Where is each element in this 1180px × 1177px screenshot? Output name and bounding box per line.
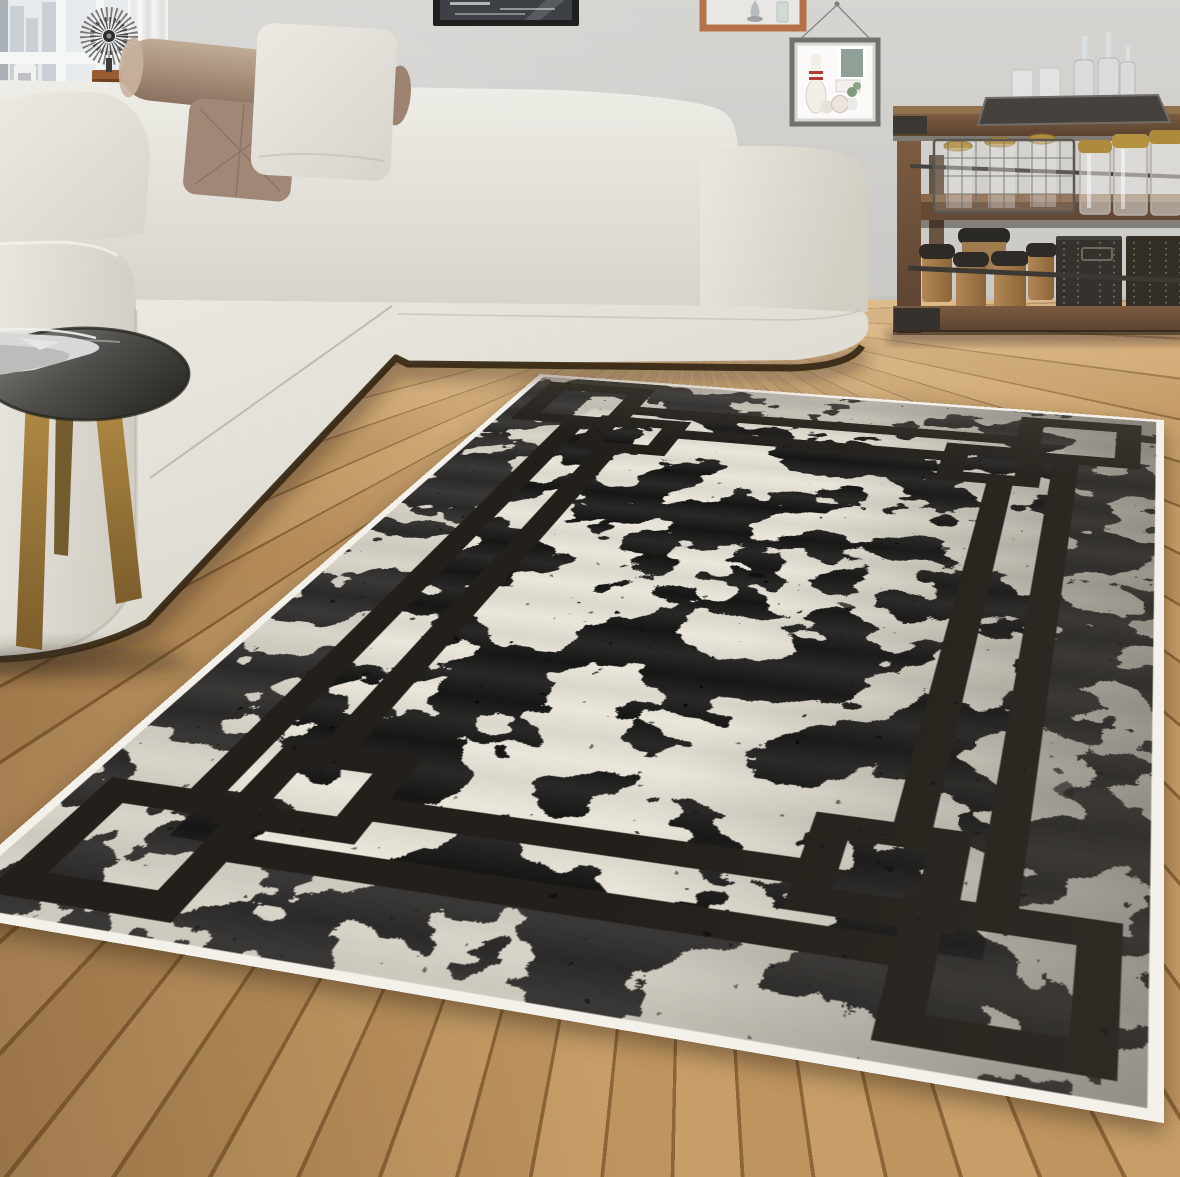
green-card — [840, 48, 864, 78]
wire-basket — [934, 134, 1074, 212]
light-pillow — [250, 22, 398, 181]
console-leg — [897, 141, 921, 333]
sofa-right-arm — [700, 146, 869, 312]
side-table-shadow — [0, 646, 188, 678]
ball — [832, 96, 849, 113]
grey-pillow — [0, 91, 150, 242]
tumbler-glass — [1039, 68, 1060, 100]
metal-tray — [978, 32, 1170, 125]
glass-bottles — [1074, 32, 1135, 100]
living-room-photo — [0, 0, 1180, 1177]
wall-art-frame — [433, 0, 579, 26]
console-table — [893, 32, 1180, 335]
tumbler-glass — [1012, 70, 1033, 100]
mason-jars — [1078, 130, 1180, 215]
cube-shelf — [703, 0, 803, 28]
glass-bottle — [777, 2, 788, 22]
furniture-layer — [0, 0, 1180, 1177]
